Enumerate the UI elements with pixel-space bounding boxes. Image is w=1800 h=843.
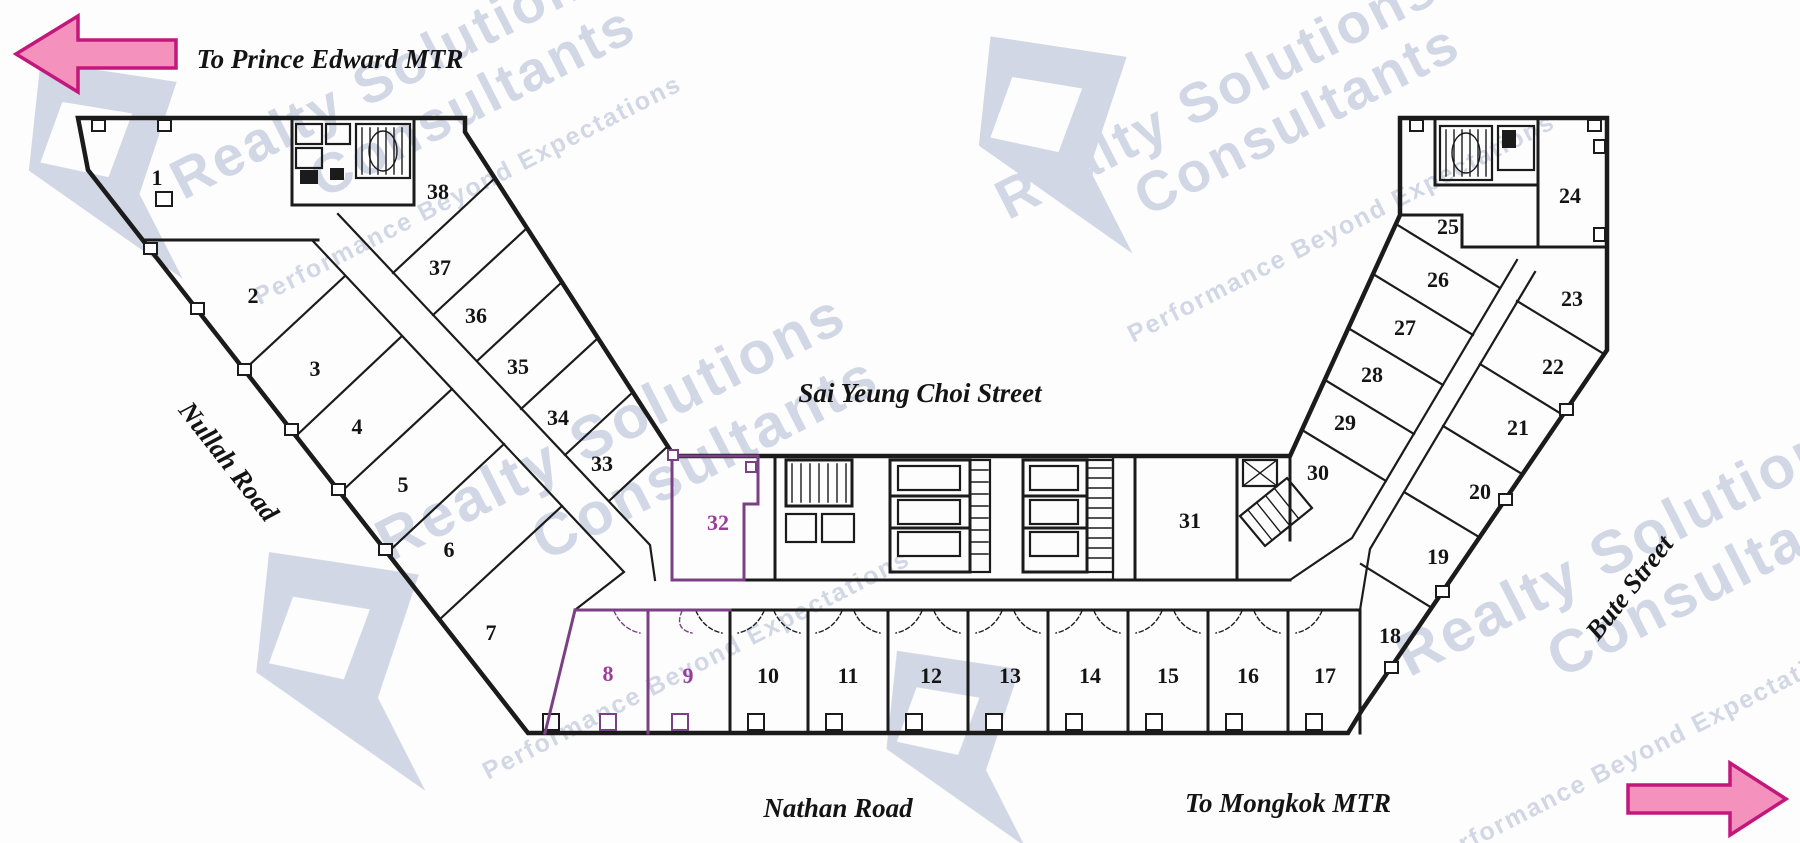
unit-label-27: 27 [1394,315,1416,340]
unit-label-36: 36 [465,303,487,328]
sai-yeung-choi-street-label: Sai Yeung Choi Street [798,378,1043,408]
unit-label-28: 28 [1361,362,1383,387]
unit-label-34: 34 [547,405,569,430]
unit-label-18: 18 [1379,623,1401,648]
mongkok-arrow-icon [1628,763,1786,835]
floor-plan: Realty Solutions Consultants Performance… [0,0,1800,843]
unit-label-25: 25 [1437,214,1459,239]
unit-label-15: 15 [1157,663,1179,688]
unit-label-19: 19 [1427,544,1449,569]
unit-label-30: 30 [1307,460,1329,485]
unit-label-2: 2 [248,283,259,308]
unit-label-29: 29 [1334,410,1356,435]
lift-icon [1243,460,1277,486]
unit-label-9: 9 [683,663,694,688]
unit-label-20: 20 [1469,479,1491,504]
unit-label-16: 16 [1237,663,1259,688]
mongkok-label: To Mongkok MTR [1185,788,1391,818]
unit-label-32: 32 [707,510,729,535]
nathan-road-label: Nathan Road [762,793,913,823]
staircase [786,460,852,506]
unit-label-13: 13 [999,663,1021,688]
unit-label-14: 14 [1079,663,1101,688]
unit-label-23: 23 [1561,286,1583,311]
unit-label-11: 11 [838,663,859,688]
unit-label-38: 38 [427,179,449,204]
unit-label-31: 31 [1179,508,1201,533]
elevator-bank [1023,460,1087,572]
unit-label-1: 1 [152,165,163,190]
unit-label-12: 12 [920,663,942,688]
unit-label-37: 37 [429,255,451,280]
unit-label-17: 17 [1314,663,1336,688]
unit-label-7: 7 [486,620,497,645]
nullah-road-label: Nullah Road [172,395,285,528]
unit-label-33: 33 [591,451,613,476]
unit-label-24: 24 [1559,183,1581,208]
floor-plan-page: Realty Solutions Consultants Performance… [0,0,1800,843]
unit-label-22: 22 [1542,354,1564,379]
unit-label-21: 21 [1507,415,1529,440]
unit-label-5: 5 [398,472,409,497]
elevator-bank [890,460,970,572]
unit-label-10: 10 [757,663,779,688]
prince-edward-label: To Prince Edward MTR [197,44,464,74]
unit-label-35: 35 [507,354,529,379]
staircase [1087,460,1113,572]
unit-label-8: 8 [603,661,614,686]
watermark-logo-icon [210,496,507,835]
unit-label-4: 4 [352,414,363,439]
staircase [970,460,990,572]
staircase [1240,478,1312,546]
unit-label-6: 6 [444,537,455,562]
unit-label-26: 26 [1427,267,1449,292]
unit-label-3: 3 [310,356,321,381]
